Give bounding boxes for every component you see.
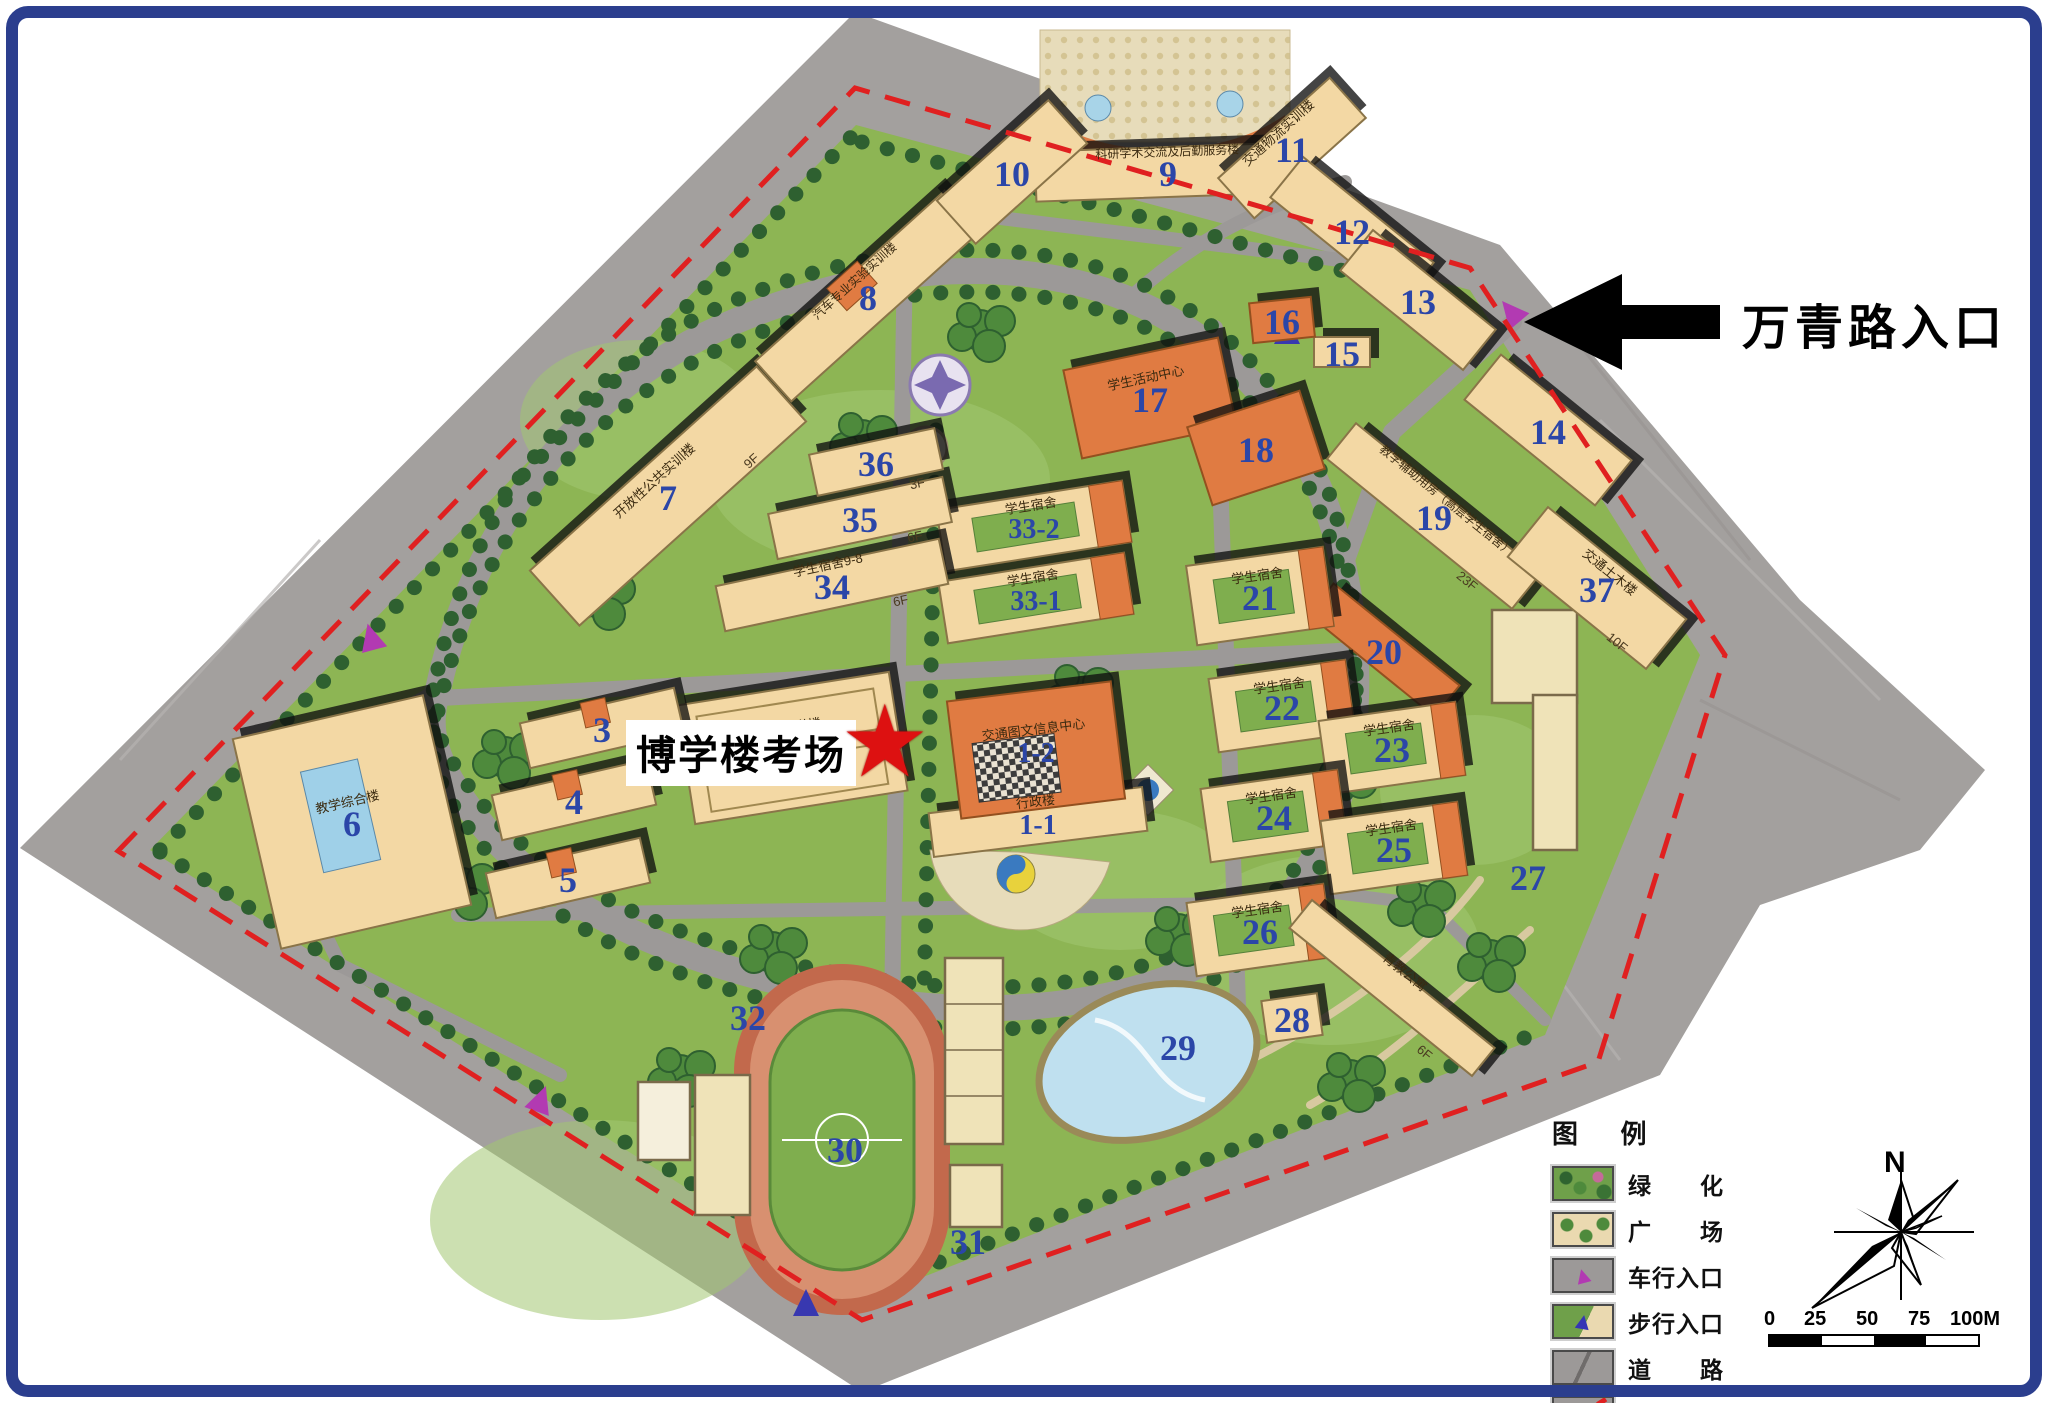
building-number: 20 xyxy=(1366,632,1402,672)
greenery-swatch-icon xyxy=(1552,1166,1614,1201)
legend-item-road: 道 路 xyxy=(1552,1349,1724,1386)
building-number: 17 xyxy=(1132,380,1168,420)
scale-bar: 0 25 50 75 100M xyxy=(1768,1308,2008,1354)
legend-item-greenery: 绿 化 xyxy=(1552,1165,1724,1202)
building-number: 32 xyxy=(730,998,766,1038)
fountain-pool xyxy=(1217,91,1243,117)
building-number: 31 xyxy=(950,1222,986,1262)
building-number: 26 xyxy=(1242,912,1278,952)
campus-site-plan: 行政楼1-1交通图文信息中心1-2基础教学楼2345教学综合楼6开放性公共实训楼… xyxy=(0,0,2048,1403)
building-number: 1-1 xyxy=(1019,810,1056,841)
scale-tick: 0 xyxy=(1764,1308,1775,1331)
legend: 图 例 绿 化 广 场 ▲ 车行入口 ▲ 步行入口 道 路 用地红线 xyxy=(1552,1114,1724,1403)
building-number: 27 xyxy=(1510,858,1546,898)
building-floors: 6F xyxy=(892,592,910,610)
scale-bar-segments xyxy=(1768,1334,1980,1347)
scale-tick: 50 xyxy=(1856,1308,1878,1331)
building-number: 22 xyxy=(1264,688,1300,728)
basketball-courts xyxy=(695,1075,750,1215)
legend-item-red-line: 用地红线 xyxy=(1552,1395,1724,1403)
tennis-court xyxy=(950,1165,1002,1227)
scale-tick: 75 xyxy=(1908,1308,1930,1331)
tennis-courts xyxy=(1492,610,1577,703)
road-swatch-icon xyxy=(1552,1350,1614,1385)
building-number: 6 xyxy=(343,804,361,844)
building-number: 5 xyxy=(559,860,577,900)
red-line-swatch-icon xyxy=(1552,1396,1614,1403)
building-number: 13 xyxy=(1400,282,1436,322)
building-number: 9 xyxy=(1159,154,1177,194)
basketball-courts xyxy=(1533,695,1577,850)
building-number: 34 xyxy=(814,567,850,607)
legend-item-plaza: 广 场 xyxy=(1552,1211,1724,1248)
building-number: 37 xyxy=(1579,570,1615,610)
building-number: 1-2 xyxy=(1017,738,1054,769)
building-number: 10 xyxy=(994,154,1030,194)
building-number: 23 xyxy=(1374,730,1410,770)
building-number: 15 xyxy=(1324,334,1360,374)
futsal-court xyxy=(638,1082,690,1160)
legend-title: 图 例 xyxy=(1552,1114,1724,1151)
exam-venue-star-icon: ★ xyxy=(840,692,930,792)
building-number: 28 xyxy=(1274,1000,1310,1040)
building-floors: 3F xyxy=(908,474,926,492)
vehicle-entrance-swatch-icon: ▲ xyxy=(1552,1258,1614,1293)
building-number: 11 xyxy=(1275,130,1309,170)
building-number: 35 xyxy=(842,500,878,540)
campus-map-page: 行政楼1-1交通图文信息中心1-2基础教学楼2345教学综合楼6开放性公共实训楼… xyxy=(0,0,2048,1403)
scale-tick: 25 xyxy=(1804,1308,1826,1331)
building-number: 16 xyxy=(1264,302,1300,342)
building-number: 12 xyxy=(1334,212,1370,252)
scale-tick: 100M xyxy=(1950,1308,2000,1331)
pedestrian-entrance-swatch-icon: ▲ xyxy=(1552,1304,1614,1339)
plaza-swatch-icon xyxy=(1552,1212,1614,1247)
building-number: 14 xyxy=(1530,412,1566,452)
building-number: 33-2 xyxy=(1008,514,1059,545)
legend-item-vehicle-entrance: ▲ 车行入口 xyxy=(1552,1257,1724,1294)
building-number: 29 xyxy=(1160,1028,1196,1068)
building-number: 7 xyxy=(659,478,677,518)
north-label: N xyxy=(1884,1146,1906,1180)
fountain-pool xyxy=(1085,95,1111,121)
legend-item-pedestrian-entrance: ▲ 步行入口 xyxy=(1552,1303,1724,1340)
building-number: 30 xyxy=(827,1130,863,1170)
building-number: 3 xyxy=(593,710,611,750)
building-number: 21 xyxy=(1242,578,1278,618)
building-number: 18 xyxy=(1238,430,1274,470)
entrance-arrow xyxy=(1518,262,1728,382)
basketball-courts xyxy=(945,958,1003,1144)
building-number: 4 xyxy=(565,782,583,822)
entrance-label: 万青路入口 xyxy=(1742,288,2007,358)
building-number: 8 xyxy=(859,278,877,318)
building-number: 36 xyxy=(858,444,894,484)
building-floors: 6F xyxy=(906,528,924,546)
building-number: 19 xyxy=(1416,498,1452,538)
building-number: 24 xyxy=(1256,798,1292,838)
exam-venue-label: 博学楼考场 xyxy=(626,720,856,786)
building-number: 25 xyxy=(1376,830,1412,870)
building-number: 33-1 xyxy=(1010,586,1061,617)
